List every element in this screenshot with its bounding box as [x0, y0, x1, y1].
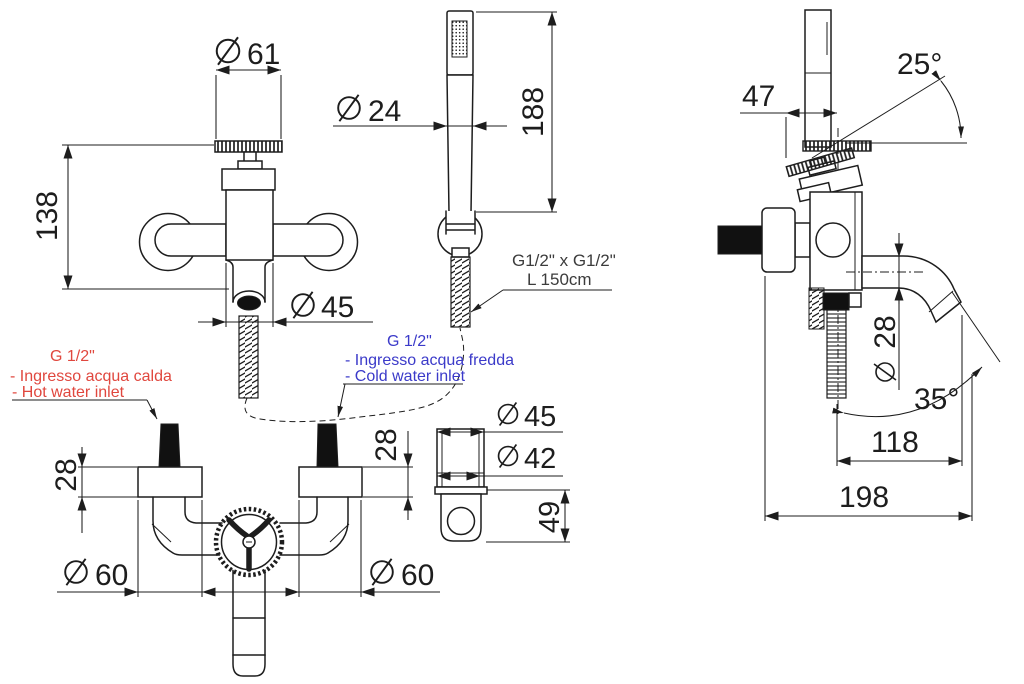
inlet-connector-side: [718, 226, 762, 254]
hot-water-label-en: - Hot water inlet: [12, 384, 125, 401]
left-elbow-outer: [153, 497, 222, 555]
shower-hose-coil: [239, 316, 258, 398]
spout-right-edge: [265, 260, 273, 302]
cold-water-inlet-connector: [317, 424, 338, 467]
pivot-circle: [816, 223, 850, 257]
handle-collar: [238, 161, 262, 169]
diameter-icon: [65, 559, 87, 585]
dim-holder-inner: 42: [524, 443, 556, 475]
cold-water-label-it: - Ingresso acqua fredda: [345, 352, 514, 369]
dim-side-handle-offset: 47: [742, 80, 775, 113]
hot-water-thread-label: G 1/2": [50, 348, 95, 365]
front-view: [140, 141, 358, 398]
hot-water-annotation: G 1/2" - Ingresso acqua calda - Hot wate…: [10, 348, 172, 419]
dim-front-handle-diameter: 61: [247, 38, 280, 71]
right-elbow-outer: [280, 497, 348, 555]
dim-shower-diameter: 24: [368, 95, 401, 128]
hot-water-inlet-connector: [159, 424, 180, 467]
bottom-view: [138, 424, 362, 676]
hose-note: G1/2" x G1/2" L 150cm: [471, 251, 616, 312]
hose-nut-side: [823, 293, 849, 310]
holder-body: [437, 429, 484, 487]
escutcheon-side: [762, 208, 795, 272]
handle-knurled-wheel: [215, 141, 282, 152]
diameter-icon: [499, 444, 518, 467]
dim-holder-outer: 45: [524, 401, 556, 433]
dim-bottom-right-escutcheon: 60: [401, 559, 434, 592]
hose-thread-label: G1/2" x G1/2": [512, 251, 616, 270]
right-arm: [273, 224, 343, 256]
wall-connector-side: [795, 223, 810, 257]
technical-drawing: 61 138 45 24 188 28 28: [0, 0, 1024, 684]
threaded-stud-side: [827, 310, 846, 398]
hose-adapter-side: [849, 293, 861, 307]
left-elbow-inner: [185, 497, 222, 523]
diameter-icon: [371, 559, 393, 585]
cold-water-thread-label: G 1/2": [387, 333, 432, 350]
spout-left-edge: [226, 260, 233, 302]
diameter-icon: [217, 37, 240, 65]
dim-side-spray-angle: 35°: [914, 383, 959, 416]
cold-water-label-en: - Cold water inlet: [345, 368, 466, 385]
hose-nut: [452, 248, 469, 257]
down-spout-cap: [233, 655, 265, 676]
spout-outlet: [238, 296, 261, 310]
left-escutcheon-block: [138, 467, 202, 497]
valve-top-block: [222, 169, 275, 190]
holder-detail-view: [435, 429, 487, 541]
technical-drawing-page: 61 138 45 24 188 28 28: [0, 0, 1024, 684]
hot-water-label-it: - Ingresso acqua calda: [10, 368, 172, 385]
hose-length-label: L 150cm: [527, 270, 592, 289]
right-escutcheon-block: [299, 467, 362, 497]
hand-shower-hose-coil: [451, 257, 470, 327]
diameter-icon: [338, 95, 360, 121]
hose-coil-side: [809, 288, 824, 329]
dim-side-spout-diameter: 28: [869, 315, 902, 348]
dim-holder-depth: 49: [534, 501, 566, 533]
dim-side-handle-angle: 25°: [897, 48, 942, 81]
dim-bottom-left-escutcheon: 60: [95, 559, 128, 592]
spout-side: [862, 256, 961, 322]
left-arm: [155, 224, 226, 256]
dim-front-body-diameter: 45: [321, 291, 354, 324]
dim-side-spout-projection: 118: [871, 426, 919, 459]
diameter-icon: [499, 402, 518, 425]
dim-shower-length: 188: [517, 87, 550, 137]
mixer-body: [226, 190, 273, 260]
dim-front-height: 138: [31, 191, 64, 241]
holder-band: [435, 487, 487, 494]
diameter-icon: [874, 363, 896, 381]
spray-face: [452, 21, 467, 57]
cold-water-annotation: G 1/2" - Ingresso acqua fredda - Cold wa…: [338, 333, 514, 417]
dim-side-total-projection: 198: [839, 481, 889, 514]
dim-bottom-right-inlet: 28: [370, 428, 403, 461]
dim-bottom-left-inlet: 28: [50, 458, 83, 491]
diameter-icon: [292, 292, 314, 318]
hand-shower-handle: [447, 75, 473, 213]
